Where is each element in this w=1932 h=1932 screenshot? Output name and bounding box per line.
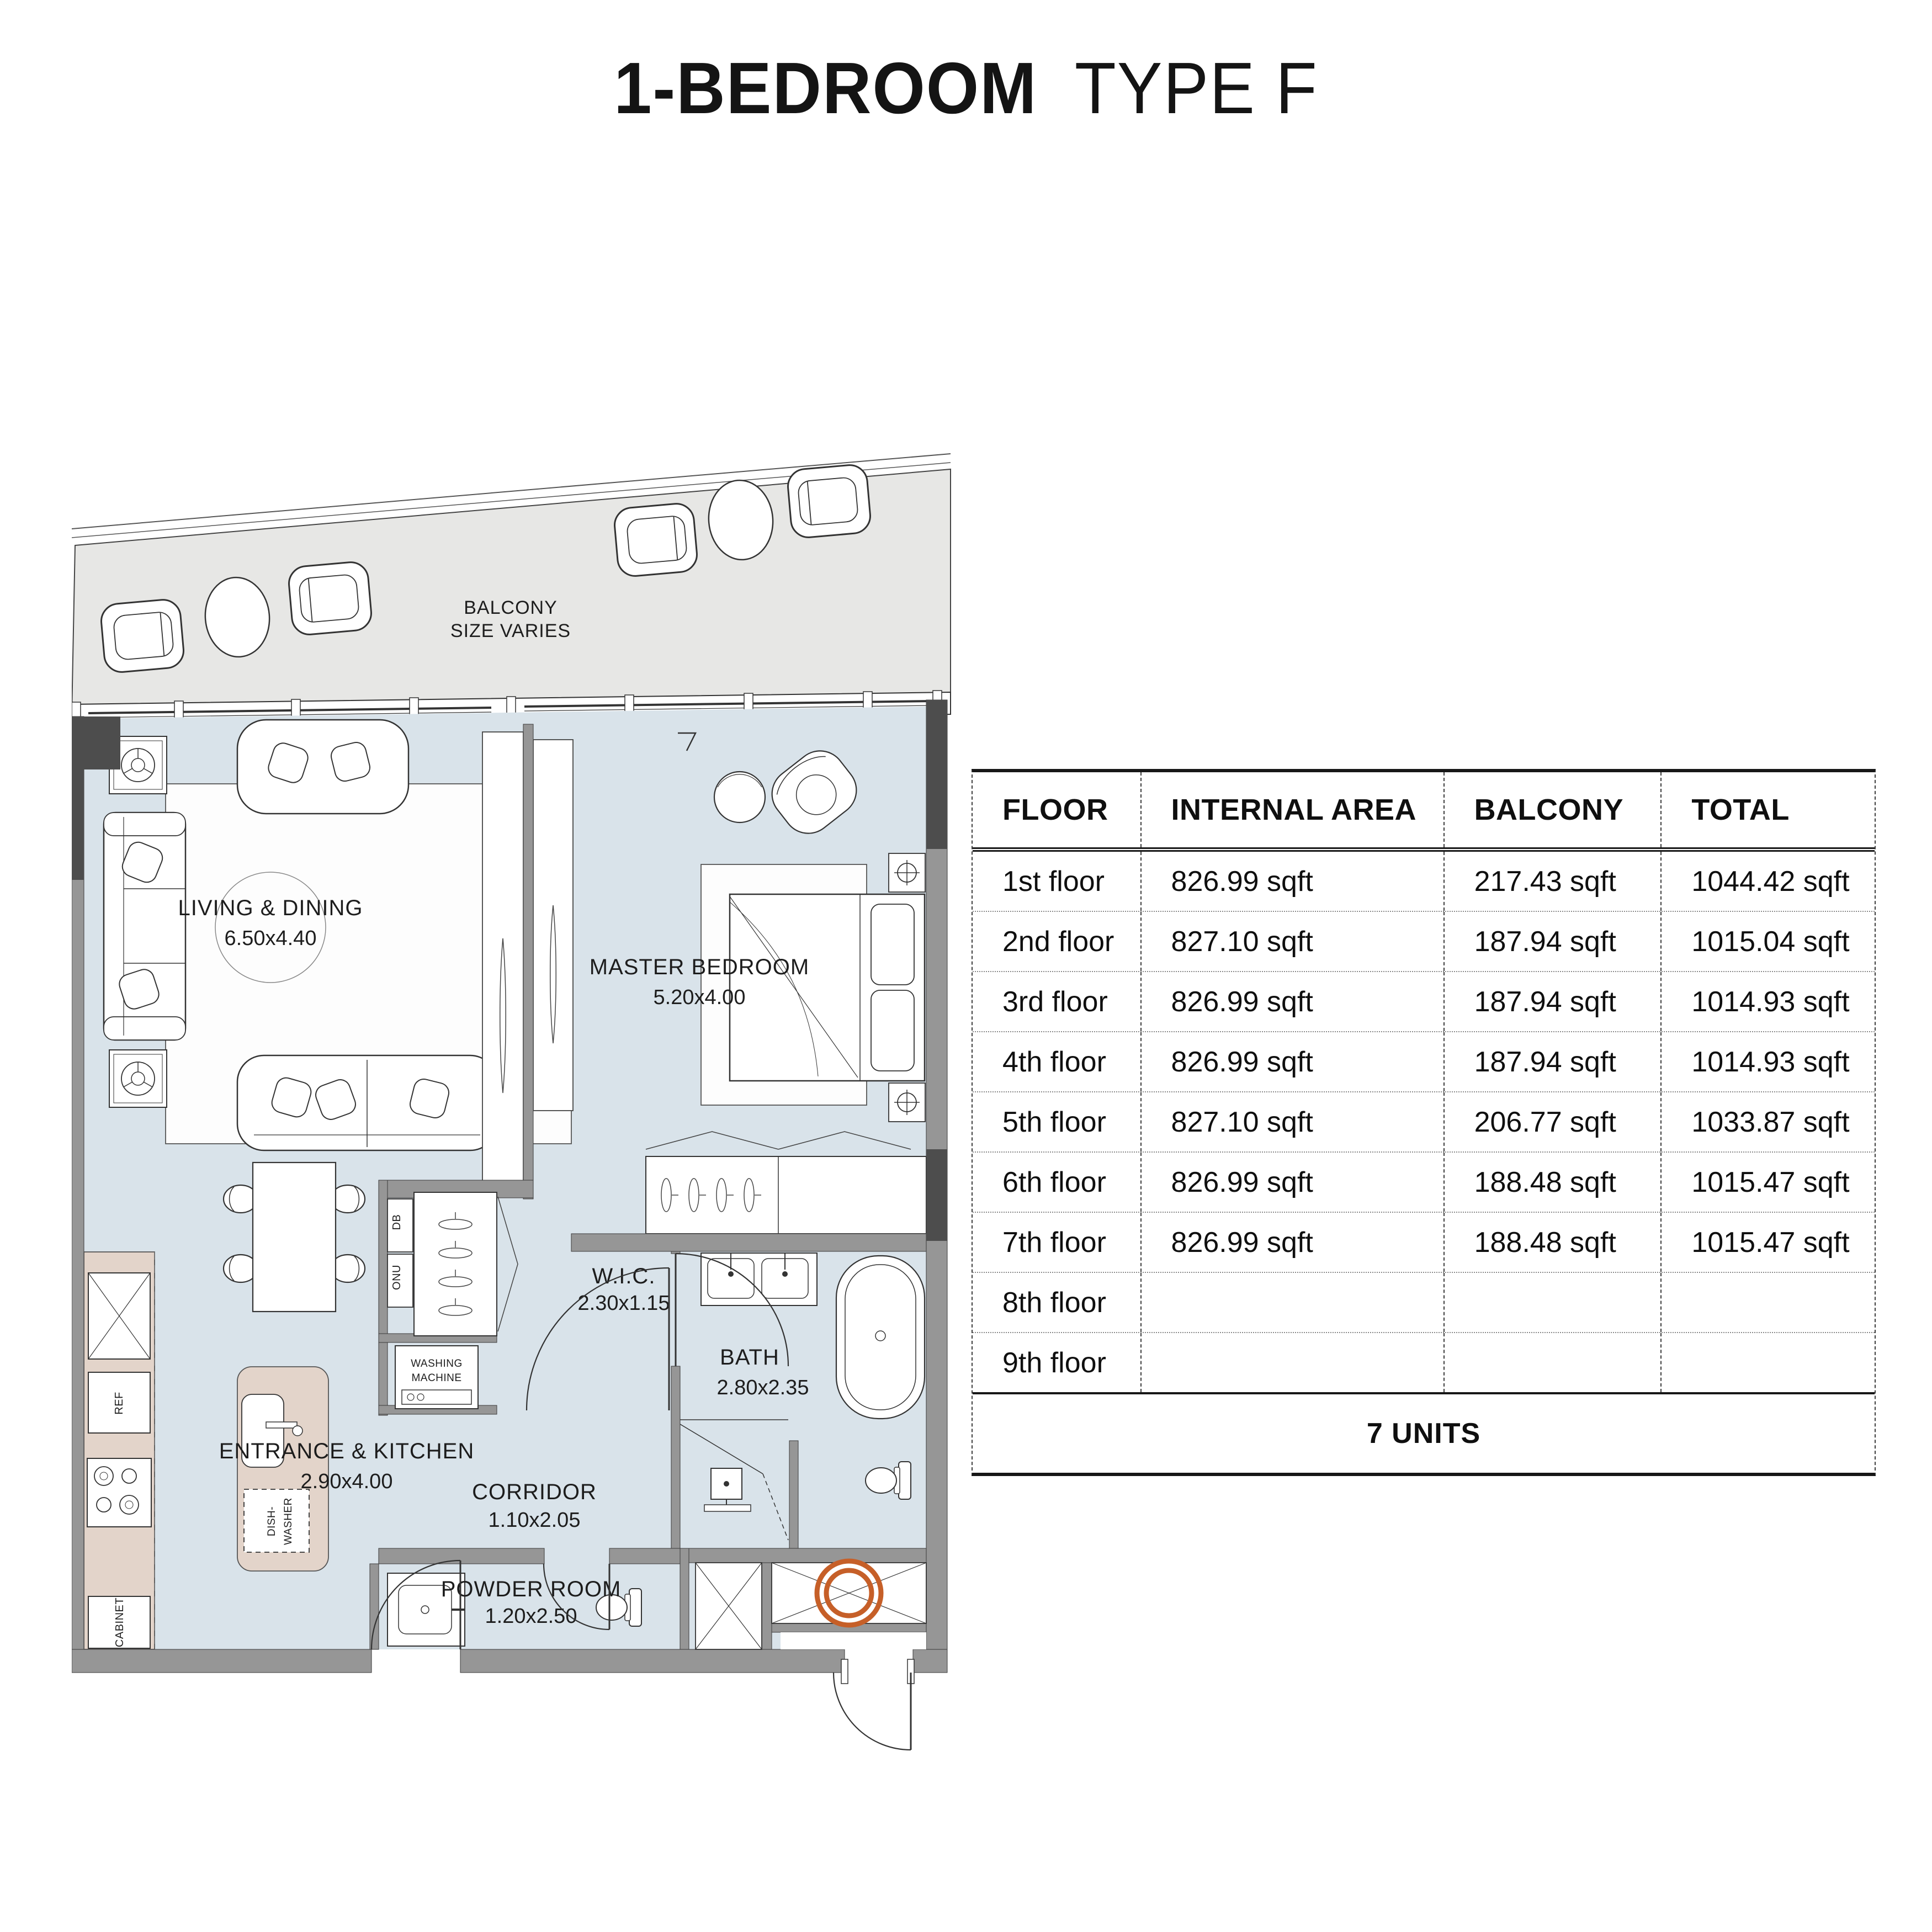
onu-label: ONU — [391, 1265, 403, 1290]
dining-table — [253, 1163, 336, 1312]
powder-room-label: POWDER ROOM — [441, 1577, 622, 1601]
cell-internal-area: 826.99 sqft — [1142, 1032, 1445, 1091]
cell-internal-area: 826.99 sqft — [1142, 1153, 1445, 1212]
drainage-shaft — [772, 1561, 926, 1625]
service-shaft — [696, 1563, 762, 1649]
cabinet: CABINET — [88, 1596, 150, 1648]
washing-machine-label-1: WASHING — [411, 1358, 463, 1370]
cell-balcony: 206.77 sqft — [1445, 1092, 1662, 1151]
faucet — [266, 1422, 297, 1428]
cell-internal-area — [1142, 1333, 1445, 1392]
cell-floor: 5th floor — [973, 1092, 1142, 1151]
balcony-armchair — [288, 561, 373, 636]
cell-floor: 3rd floor — [973, 972, 1142, 1031]
side-table — [109, 1050, 167, 1107]
cell-total: 1015.47 sqft — [1662, 1213, 1875, 1272]
balcony: BALCONY SIZE VARIES — [72, 454, 951, 714]
page-title-primary: 1-BEDROOM — [614, 47, 1037, 129]
header-balcony: BALCONY — [1445, 772, 1662, 847]
cell-floor: 8th floor — [973, 1273, 1142, 1332]
cell-internal-area — [1142, 1273, 1445, 1332]
page: { "title": { "primary": "1-BEDROOM", "se… — [0, 0, 1932, 1932]
table-row: 3rd floor 826.99 sqft 187.94 sqft 1014.9… — [973, 972, 1875, 1032]
table-row: 2nd floor 827.10 sqft 187.94 sqft 1015.0… — [973, 912, 1875, 972]
cell-balcony — [1445, 1273, 1662, 1332]
stove — [87, 1458, 151, 1527]
cell-floor: 2nd floor — [973, 912, 1142, 971]
cabinet-label: CABINET — [114, 1597, 126, 1647]
cell-total — [1662, 1333, 1875, 1392]
header-internal-area: INTERNAL AREA — [1142, 772, 1445, 847]
dishwasher-label-1: DISH- — [266, 1506, 278, 1536]
cell-total: 1015.04 sqft — [1662, 912, 1875, 971]
cell-internal-area: 826.99 sqft — [1142, 972, 1445, 1031]
balcony-armchair — [613, 502, 698, 577]
cell-floor: 6th floor — [973, 1153, 1142, 1212]
onu-box: ONU — [388, 1254, 413, 1307]
table-row: 7th floor 826.99 sqft 188.48 sqft 1015.4… — [973, 1213, 1875, 1273]
cell-balcony: 187.94 sqft — [1445, 1032, 1662, 1091]
table-row: 8th floor — [973, 1273, 1875, 1333]
db-label: DB — [391, 1214, 403, 1230]
db-box: DB — [388, 1199, 413, 1252]
bath-label: BATH — [720, 1345, 779, 1370]
master-bedroom-label: MASTER BEDROOM — [590, 955, 809, 979]
living-dining-label: LIVING & DINING — [178, 896, 363, 920]
bed — [730, 894, 925, 1081]
header-floor: FLOOR — [973, 772, 1142, 847]
table-footer-units: 7 UNITS — [973, 1394, 1875, 1473]
kitchen-island: DISH- WASHER — [237, 1367, 328, 1571]
sofa — [104, 813, 185, 1040]
nightstand — [889, 853, 925, 892]
dishwasher: DISH- WASHER — [244, 1489, 309, 1552]
area-table-header: FLOOR INTERNAL AREA BALCONY TOTAL — [973, 772, 1875, 852]
entry-vestibule — [781, 1632, 926, 1649]
cell-floor: 1st floor — [973, 852, 1142, 911]
cell-balcony: 217.43 sqft — [1445, 852, 1662, 911]
page-title: 1-BEDROOM TYPE F — [68, 46, 1865, 130]
bath-dims: 2.80x2.35 — [717, 1376, 809, 1399]
cell-balcony: 187.94 sqft — [1445, 912, 1662, 971]
cell-floor: 9th floor — [973, 1333, 1142, 1392]
living-dining-dims: 6.50x4.40 — [225, 927, 317, 950]
refrigerator: REF — [88, 1372, 150, 1433]
dishwasher-label-2: WASHER — [283, 1498, 294, 1545]
header-total: TOTAL — [1662, 772, 1875, 847]
cell-total: 1014.93 sqft — [1662, 1032, 1875, 1091]
master-bedroom-dims: 5.20x4.00 — [654, 986, 746, 1009]
accent-chairs — [237, 720, 408, 814]
cell-balcony — [1445, 1333, 1662, 1392]
cell-total — [1662, 1273, 1875, 1332]
cell-internal-area: 826.99 sqft — [1142, 1213, 1445, 1272]
entrance-door — [834, 1659, 914, 1750]
cell-internal-area: 827.10 sqft — [1142, 1092, 1445, 1151]
cell-total: 1033.87 sqft — [1662, 1092, 1875, 1151]
cell-balcony: 188.48 sqft — [1445, 1153, 1662, 1212]
balcony-label: BALCONY — [464, 597, 558, 618]
corridor-dims: 1.10x2.05 — [489, 1509, 581, 1532]
corridor-label: CORRIDOR — [472, 1480, 597, 1504]
cell-internal-area: 827.10 sqft — [1142, 912, 1445, 971]
balcony-size-label: SIZE VARIES — [450, 620, 571, 641]
cell-balcony: 187.94 sqft — [1445, 972, 1662, 1031]
bathtub — [836, 1256, 925, 1419]
page-title-secondary: TYPE F — [1075, 47, 1318, 129]
cell-total: 1014.93 sqft — [1662, 972, 1875, 1031]
cell-total: 1044.42 sqft — [1662, 852, 1875, 911]
entrance-kitchen-label: ENTRANCE & KITCHEN — [219, 1439, 475, 1463]
ref-label: REF — [113, 1392, 125, 1415]
cell-floor: 7th floor — [973, 1213, 1142, 1272]
table-row: 1st floor 826.99 sqft 217.43 sqft 1044.4… — [973, 852, 1875, 912]
balcony-armchair — [787, 464, 872, 539]
wic-dims: 2.30x1.15 — [578, 1292, 670, 1315]
cell-total: 1015.47 sqft — [1662, 1153, 1875, 1212]
washing-machine-label-2: MACHINE — [411, 1372, 461, 1384]
table-row: 9th floor — [973, 1333, 1875, 1394]
cell-floor: 4th floor — [973, 1032, 1142, 1091]
cell-balcony: 188.48 sqft — [1445, 1213, 1662, 1272]
entrance-kitchen-dims: 2.90x4.00 — [301, 1470, 393, 1493]
vanity — [701, 1253, 817, 1305]
pantry-unit — [88, 1273, 150, 1359]
cell-internal-area: 826.99 sqft — [1142, 852, 1445, 911]
nightstand — [889, 1083, 925, 1122]
balcony-armchair — [100, 598, 185, 673]
washing-machine-closet: WASHING MACHINE — [395, 1346, 478, 1409]
pouf — [714, 772, 765, 822]
powder-room-dims: 1.20x2.50 — [485, 1605, 577, 1628]
table-row: 6th floor 826.99 sqft 188.48 sqft 1015.4… — [973, 1153, 1875, 1213]
floor-plan: BALCONY SIZE VARIES — [72, 453, 988, 1833]
table-row: 4th floor 826.99 sqft 187.94 sqft 1014.9… — [973, 1032, 1875, 1092]
table-row: 5th floor 827.10 sqft 206.77 sqft 1033.8… — [973, 1092, 1875, 1153]
loveseat — [237, 1055, 497, 1150]
area-table: FLOOR INTERNAL AREA BALCONY TOTAL 1st fl… — [972, 769, 1876, 1476]
